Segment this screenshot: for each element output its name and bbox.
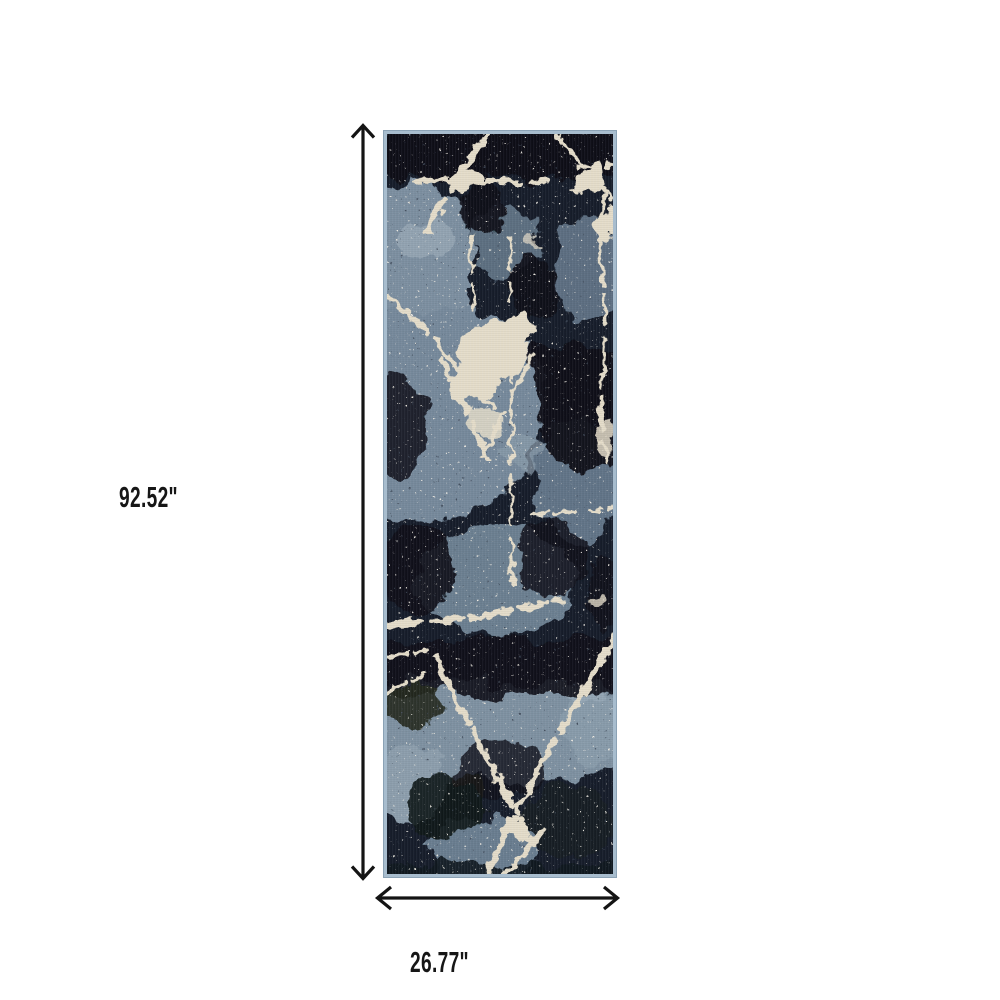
rug-dimension-diagram: 92.52" 26.77": [0, 0, 1000, 1000]
arrowhead-down-icon: [352, 867, 374, 879]
arrowhead-up-icon: [352, 126, 374, 138]
arrowhead-left-icon: [378, 887, 392, 909]
rug-product-image: [383, 130, 617, 878]
arrowhead-right-icon: [604, 887, 618, 909]
height-dimension-label: 92.52": [119, 484, 178, 513]
rug-pile-texture: [383, 130, 617, 878]
rug-pattern: [383, 130, 617, 878]
width-dimension-label: 26.77": [410, 949, 469, 978]
